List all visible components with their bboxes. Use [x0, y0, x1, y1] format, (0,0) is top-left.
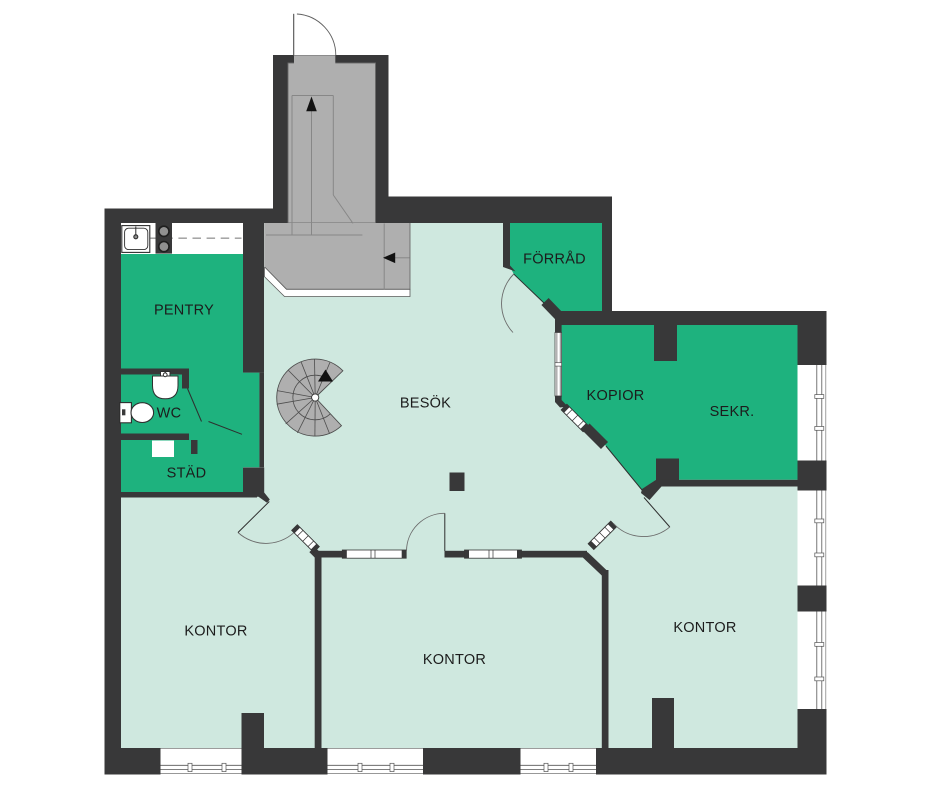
svg-text:KOPIOR: KOPIOR [587, 388, 645, 404]
svg-text:BESÖK: BESÖK [400, 394, 451, 412]
svg-text:STÄD: STÄD [167, 465, 207, 482]
svg-text:WC: WC [157, 406, 182, 422]
svg-text:KONTOR: KONTOR [423, 652, 486, 668]
svg-text:SEKR.: SEKR. [710, 404, 755, 420]
svg-text:KONTOR: KONTOR [673, 620, 736, 636]
svg-text:FÖRRÅD: FÖRRÅD [523, 250, 586, 268]
svg-text:PENTRY: PENTRY [154, 303, 214, 319]
svg-text:KONTOR: KONTOR [184, 624, 247, 640]
